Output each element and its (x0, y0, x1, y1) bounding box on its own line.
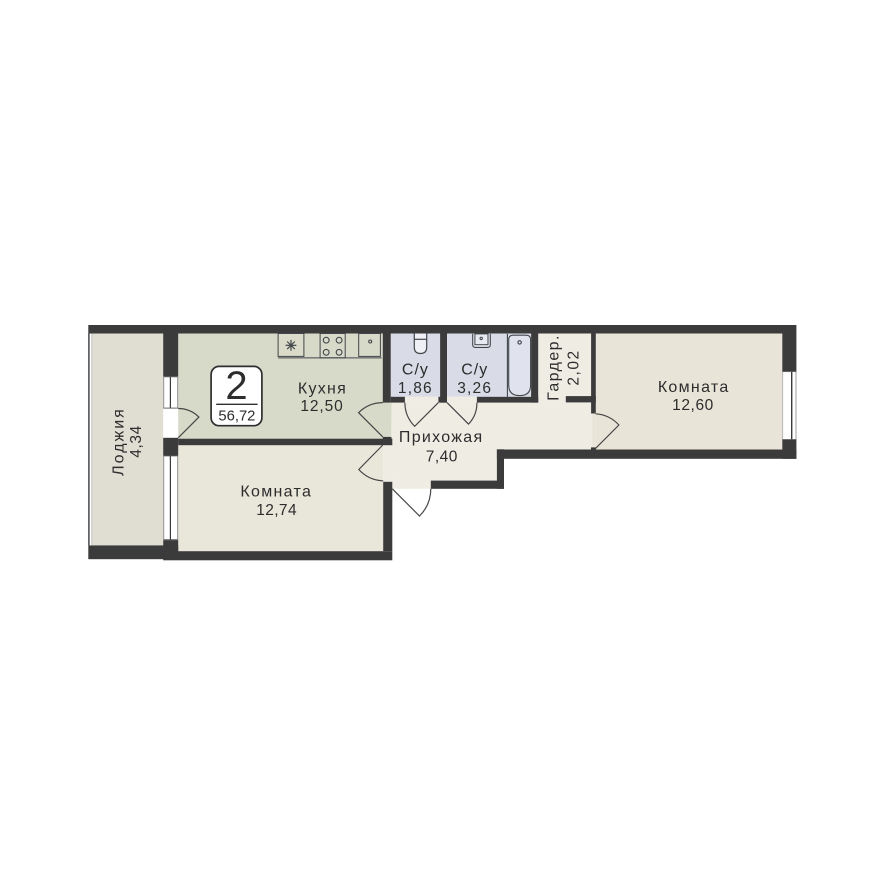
svg-text:Комната: Комната (240, 484, 312, 501)
svg-text:12,60: 12,60 (672, 397, 714, 414)
svg-text:Прихожая: Прихожая (399, 429, 484, 446)
svg-text:Лоджия: Лоджия (110, 407, 127, 476)
svg-text:7,40: 7,40 (426, 448, 458, 465)
svg-text:12,50: 12,50 (300, 398, 343, 415)
svg-text:Комната: Комната (658, 379, 730, 396)
svg-text:1,86: 1,86 (398, 380, 433, 397)
svg-text:С/у: С/у (402, 361, 429, 378)
svg-text:Кухня: Кухня (298, 381, 347, 398)
svg-text:2: 2 (225, 364, 247, 408)
svg-text:4,34: 4,34 (128, 425, 145, 458)
svg-text:3,26: 3,26 (457, 380, 492, 397)
svg-text:С/у: С/у (461, 361, 488, 378)
svg-text:56,72: 56,72 (218, 408, 255, 424)
svg-text:12,74: 12,74 (256, 502, 297, 519)
svg-text:Гардер.: Гардер. (546, 334, 563, 401)
svg-text:2,02: 2,02 (566, 349, 583, 385)
